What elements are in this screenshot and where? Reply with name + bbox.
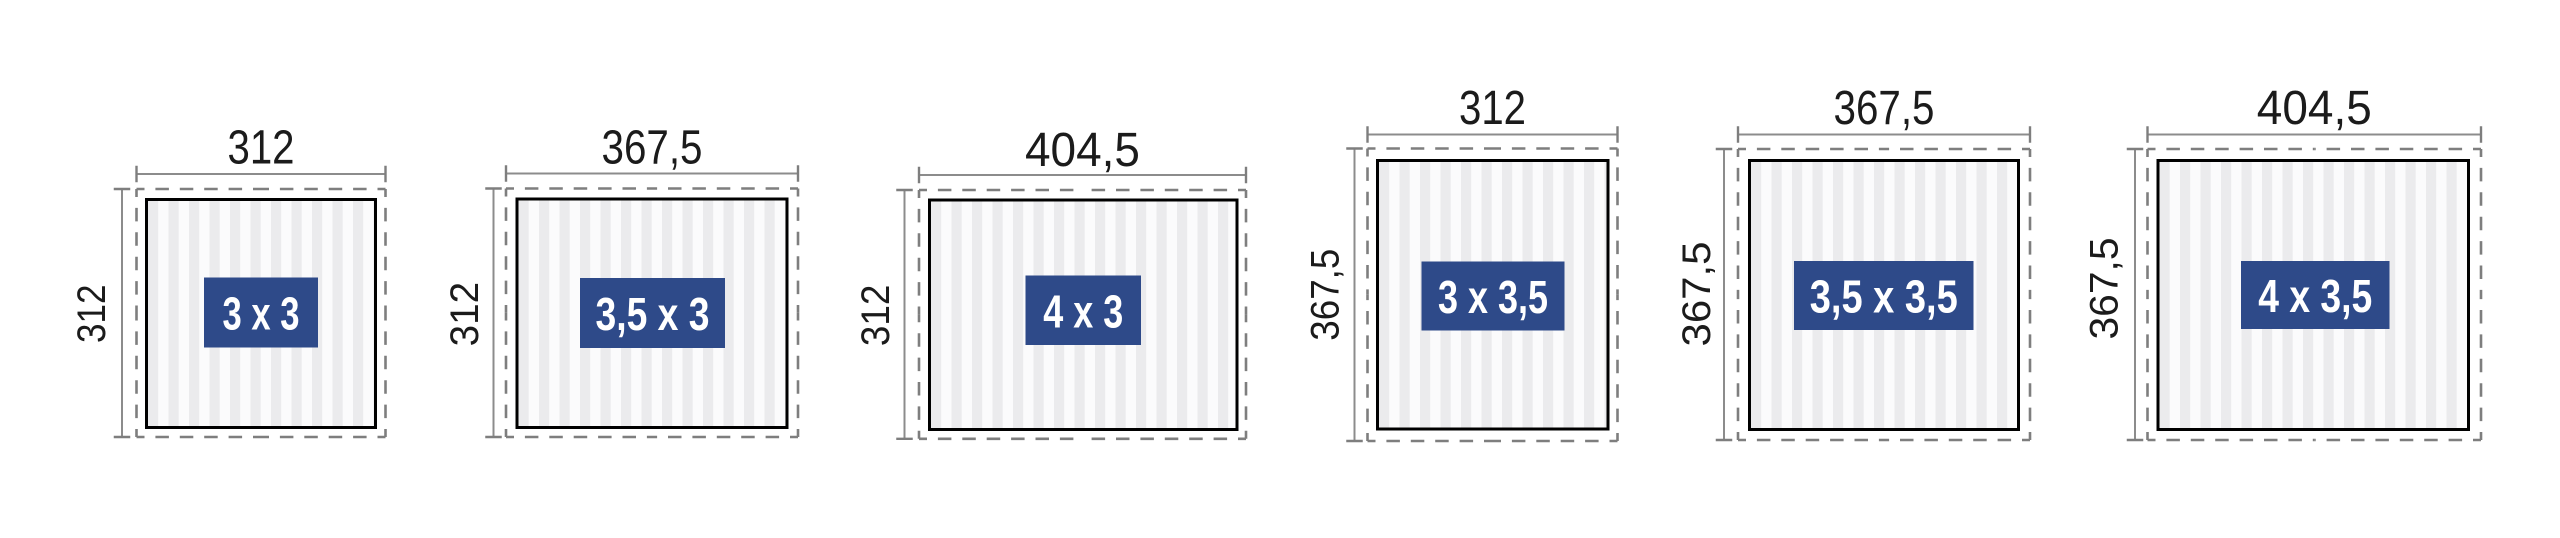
svg-text:3 x 3,5: 3 x 3,5 [1438,271,1548,323]
svg-text:4 x 3,5: 4 x 3,5 [2258,270,2372,322]
svg-text:367,5: 367,5 [602,121,703,175]
svg-text:367,5: 367,5 [1303,249,1347,341]
svg-text:312: 312 [228,121,295,175]
svg-text:367,5: 367,5 [2083,238,2127,340]
svg-text:312: 312 [1459,81,1526,135]
svg-text:312: 312 [854,285,898,347]
svg-text:4 x 3: 4 x 3 [1043,285,1123,337]
svg-text:3 x 3: 3 x 3 [223,288,300,340]
svg-text:312: 312 [443,282,487,347]
svg-text:404,5: 404,5 [2257,81,2372,135]
svg-text:3,5 x 3: 3,5 x 3 [596,288,710,340]
svg-text:367,5: 367,5 [1675,242,1719,347]
svg-text:312: 312 [70,284,114,343]
svg-text:367,5: 367,5 [1834,81,1935,135]
svg-text:3,5 x 3,5: 3,5 x 3,5 [1810,271,1958,323]
svg-text:404,5: 404,5 [1025,123,1140,177]
